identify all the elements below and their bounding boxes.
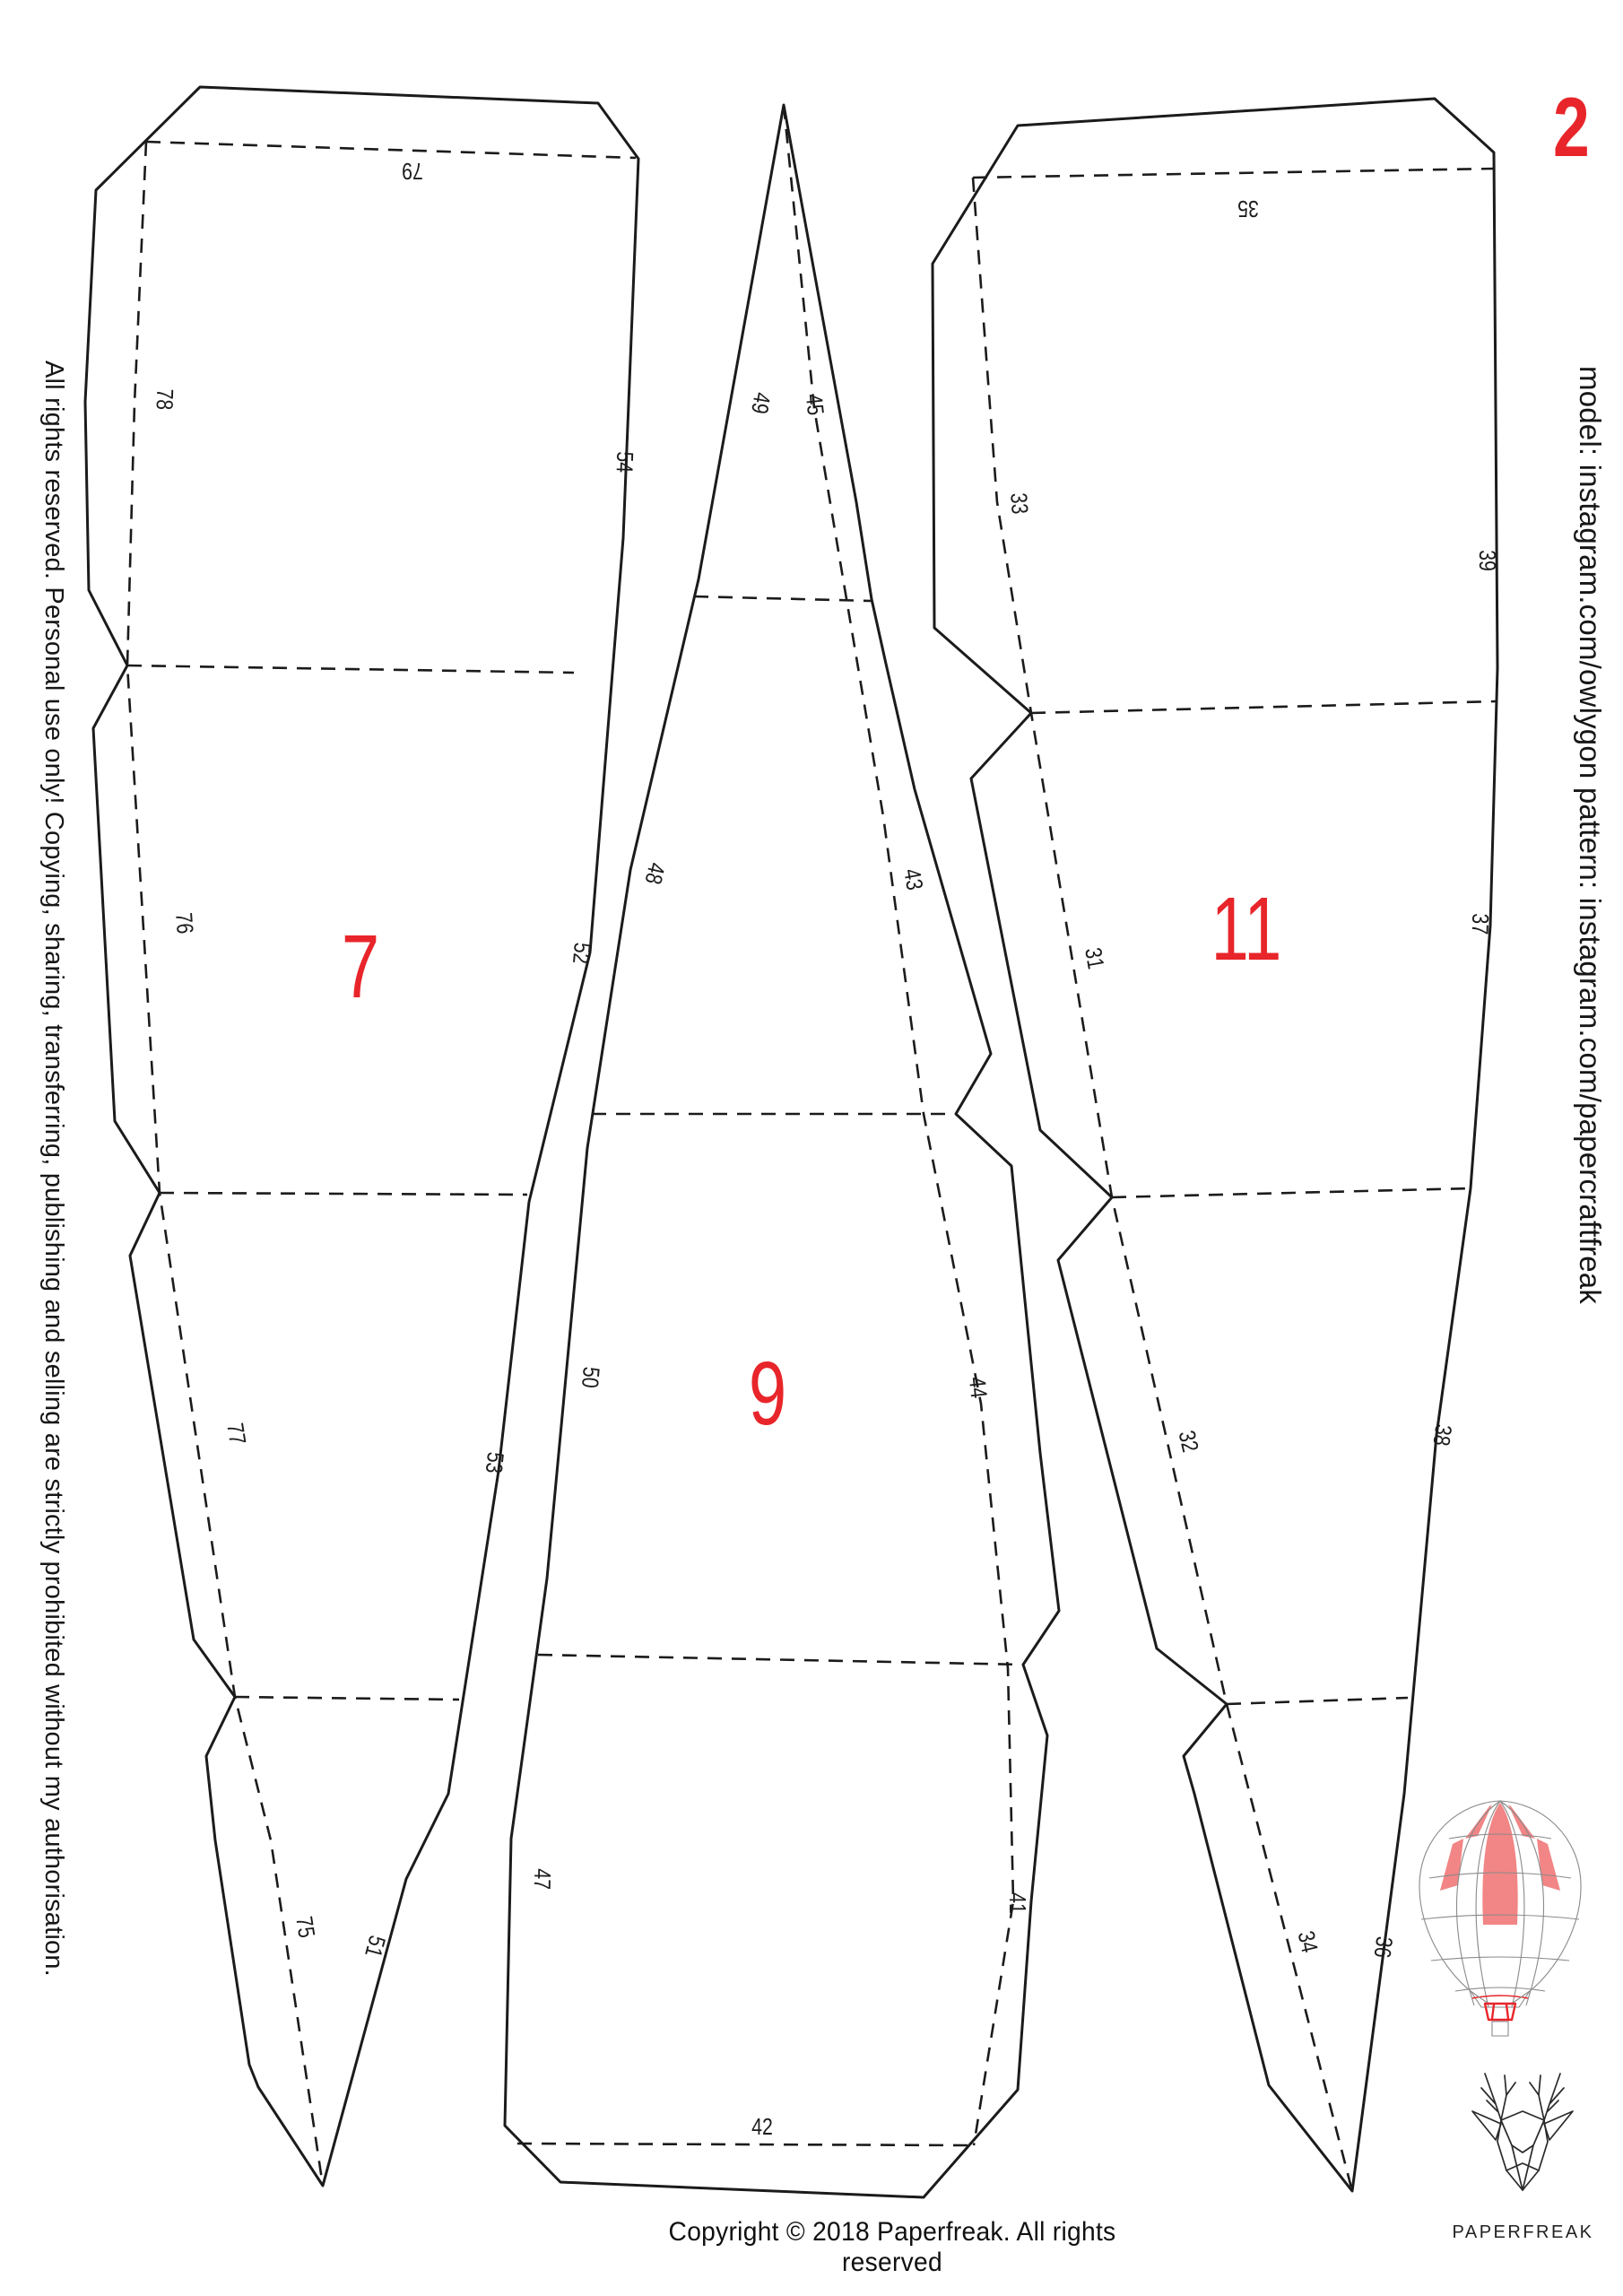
edge-number-label: 54	[611, 451, 638, 474]
edge-number-label: 41	[1003, 1892, 1030, 1914]
edge-number-label: 52	[567, 942, 595, 965]
piece-9-fold-1	[694, 596, 872, 601]
piece-7-fold-2	[127, 665, 574, 673]
edge-number-label: 50	[576, 1366, 603, 1389]
piece-11-fold-4	[1227, 1698, 1408, 1704]
piece-9	[505, 105, 1059, 2197]
edge-number-label: 34	[1292, 1928, 1323, 1955]
piece-11-fold-top	[973, 169, 1494, 178]
piece-number-label: 9	[749, 1344, 786, 1443]
piece-number-label: 7	[342, 917, 379, 1016]
piece-9-fold-bottom	[517, 2144, 970, 2145]
edge-number-label: 49	[745, 390, 775, 415]
edge-number-label: 76	[170, 912, 198, 935]
edge-number-label: 48	[639, 860, 670, 887]
edge-number-label: 43	[898, 866, 927, 891]
edge-number-label: 31	[1079, 945, 1108, 970]
piece-number-label: 11	[1211, 879, 1282, 978]
piece-7-fold-top	[146, 142, 636, 158]
edge-number-label: 47	[528, 1868, 555, 1890]
pattern-number-labels: 7978547652775375517494548435044474142935…	[151, 157, 1500, 2140]
hot-air-balloon-icon	[1406, 1792, 1594, 2043]
rights-notice-text: All rights reserved. Personal use only! …	[39, 361, 68, 1977]
sheet-number: 2	[1553, 79, 1590, 176]
piece-9-cut-outline	[505, 105, 1059, 2197]
edge-number-label: 42	[751, 2114, 773, 2141]
edge-number-label: 37	[1466, 913, 1493, 935]
edge-number-label: 53	[480, 1451, 508, 1475]
piece-7-fold-3	[160, 1193, 527, 1195]
edge-number-label: 75	[291, 1915, 320, 1940]
piece-11-fold-2	[1031, 701, 1496, 713]
copyright-text: Copyright © 2018 Paperfreak. All rights …	[639, 2217, 1145, 2278]
deer-head-icon	[1460, 2065, 1585, 2208]
edge-number-label: 38	[1428, 1422, 1457, 1448]
pattern-sheet-page: { "page": { "sheet_number": "2", "footer…	[0, 0, 1623, 2296]
edge-number-label: 32	[1173, 1428, 1203, 1455]
edge-number-label: 36	[1368, 1935, 1397, 1959]
piece-11-fold-3	[1112, 1188, 1471, 1197]
model-credit-text: model: instagram.com/owlygon pattern: in…	[1573, 366, 1607, 1304]
edge-number-label: 79	[402, 157, 423, 184]
edge-number-label: 35	[1237, 195, 1259, 222]
piece-7-fold-vertical	[127, 142, 323, 2186]
piece-9-fold-3	[538, 1655, 1023, 1665]
edge-number-label: 33	[1005, 492, 1033, 516]
edge-number-label: 39	[1473, 550, 1500, 571]
edge-number-label: 45	[800, 393, 829, 417]
logo-wordmark: PAPERFREAK	[1449, 2222, 1597, 2243]
piece-11-fold-vertical	[973, 178, 1352, 2191]
piece-7-fold-4	[235, 1697, 459, 1700]
edge-number-label: 51	[360, 1933, 391, 1961]
edge-number-label: 44	[963, 1376, 992, 1400]
edge-number-label: 78	[151, 388, 178, 411]
edge-number-label: 77	[221, 1422, 251, 1447]
pattern-linework: 7978547652775375517494548435044474142935…	[0, 0, 1623, 2296]
